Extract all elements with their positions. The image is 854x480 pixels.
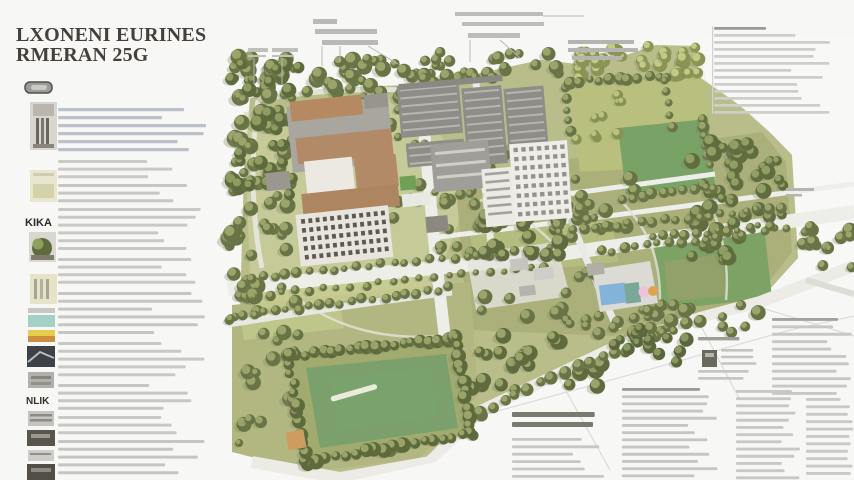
svg-text:RMERAN 25G: RMERAN 25G [16,44,149,66]
svg-text:KIKA: KIKA [25,217,52,229]
svg-text:LXONENI EURINES: LXONENI EURINES [16,24,206,46]
svg-text:NLIK: NLIK [26,396,50,407]
